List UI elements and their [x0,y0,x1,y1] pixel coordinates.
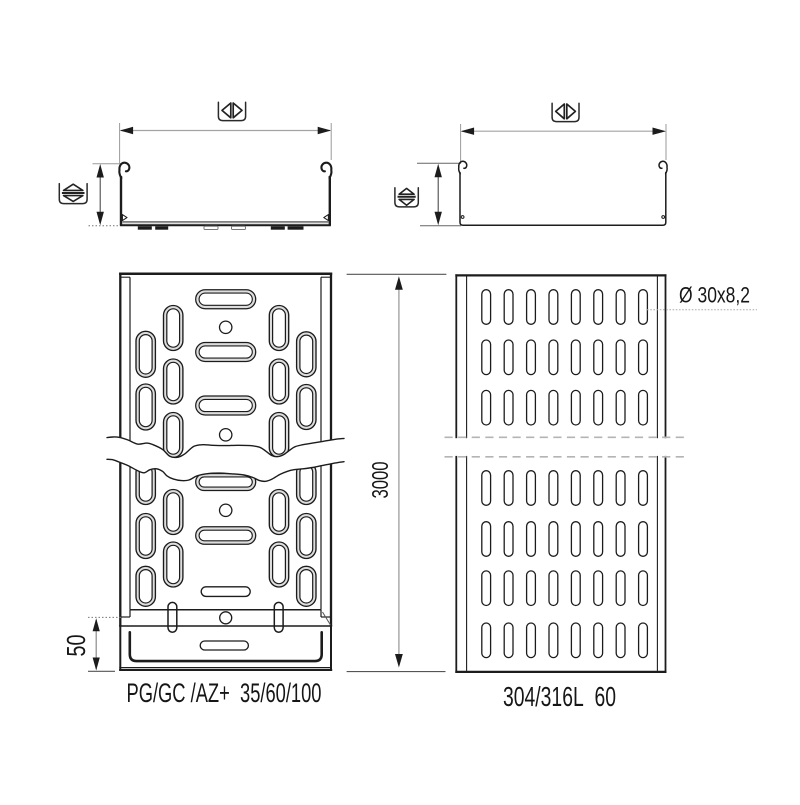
svg-text:PG/GC /AZ+ 35/60/100: PG/GC /AZ+ 35/60/100 [127,678,322,708]
svg-text:304/316L 60: 304/316L 60 [503,681,616,712]
svg-text:Ø 30x8,2: Ø 30x8,2 [679,283,750,308]
svg-text:50: 50 [63,635,91,657]
svg-text:3000: 3000 [367,462,393,499]
